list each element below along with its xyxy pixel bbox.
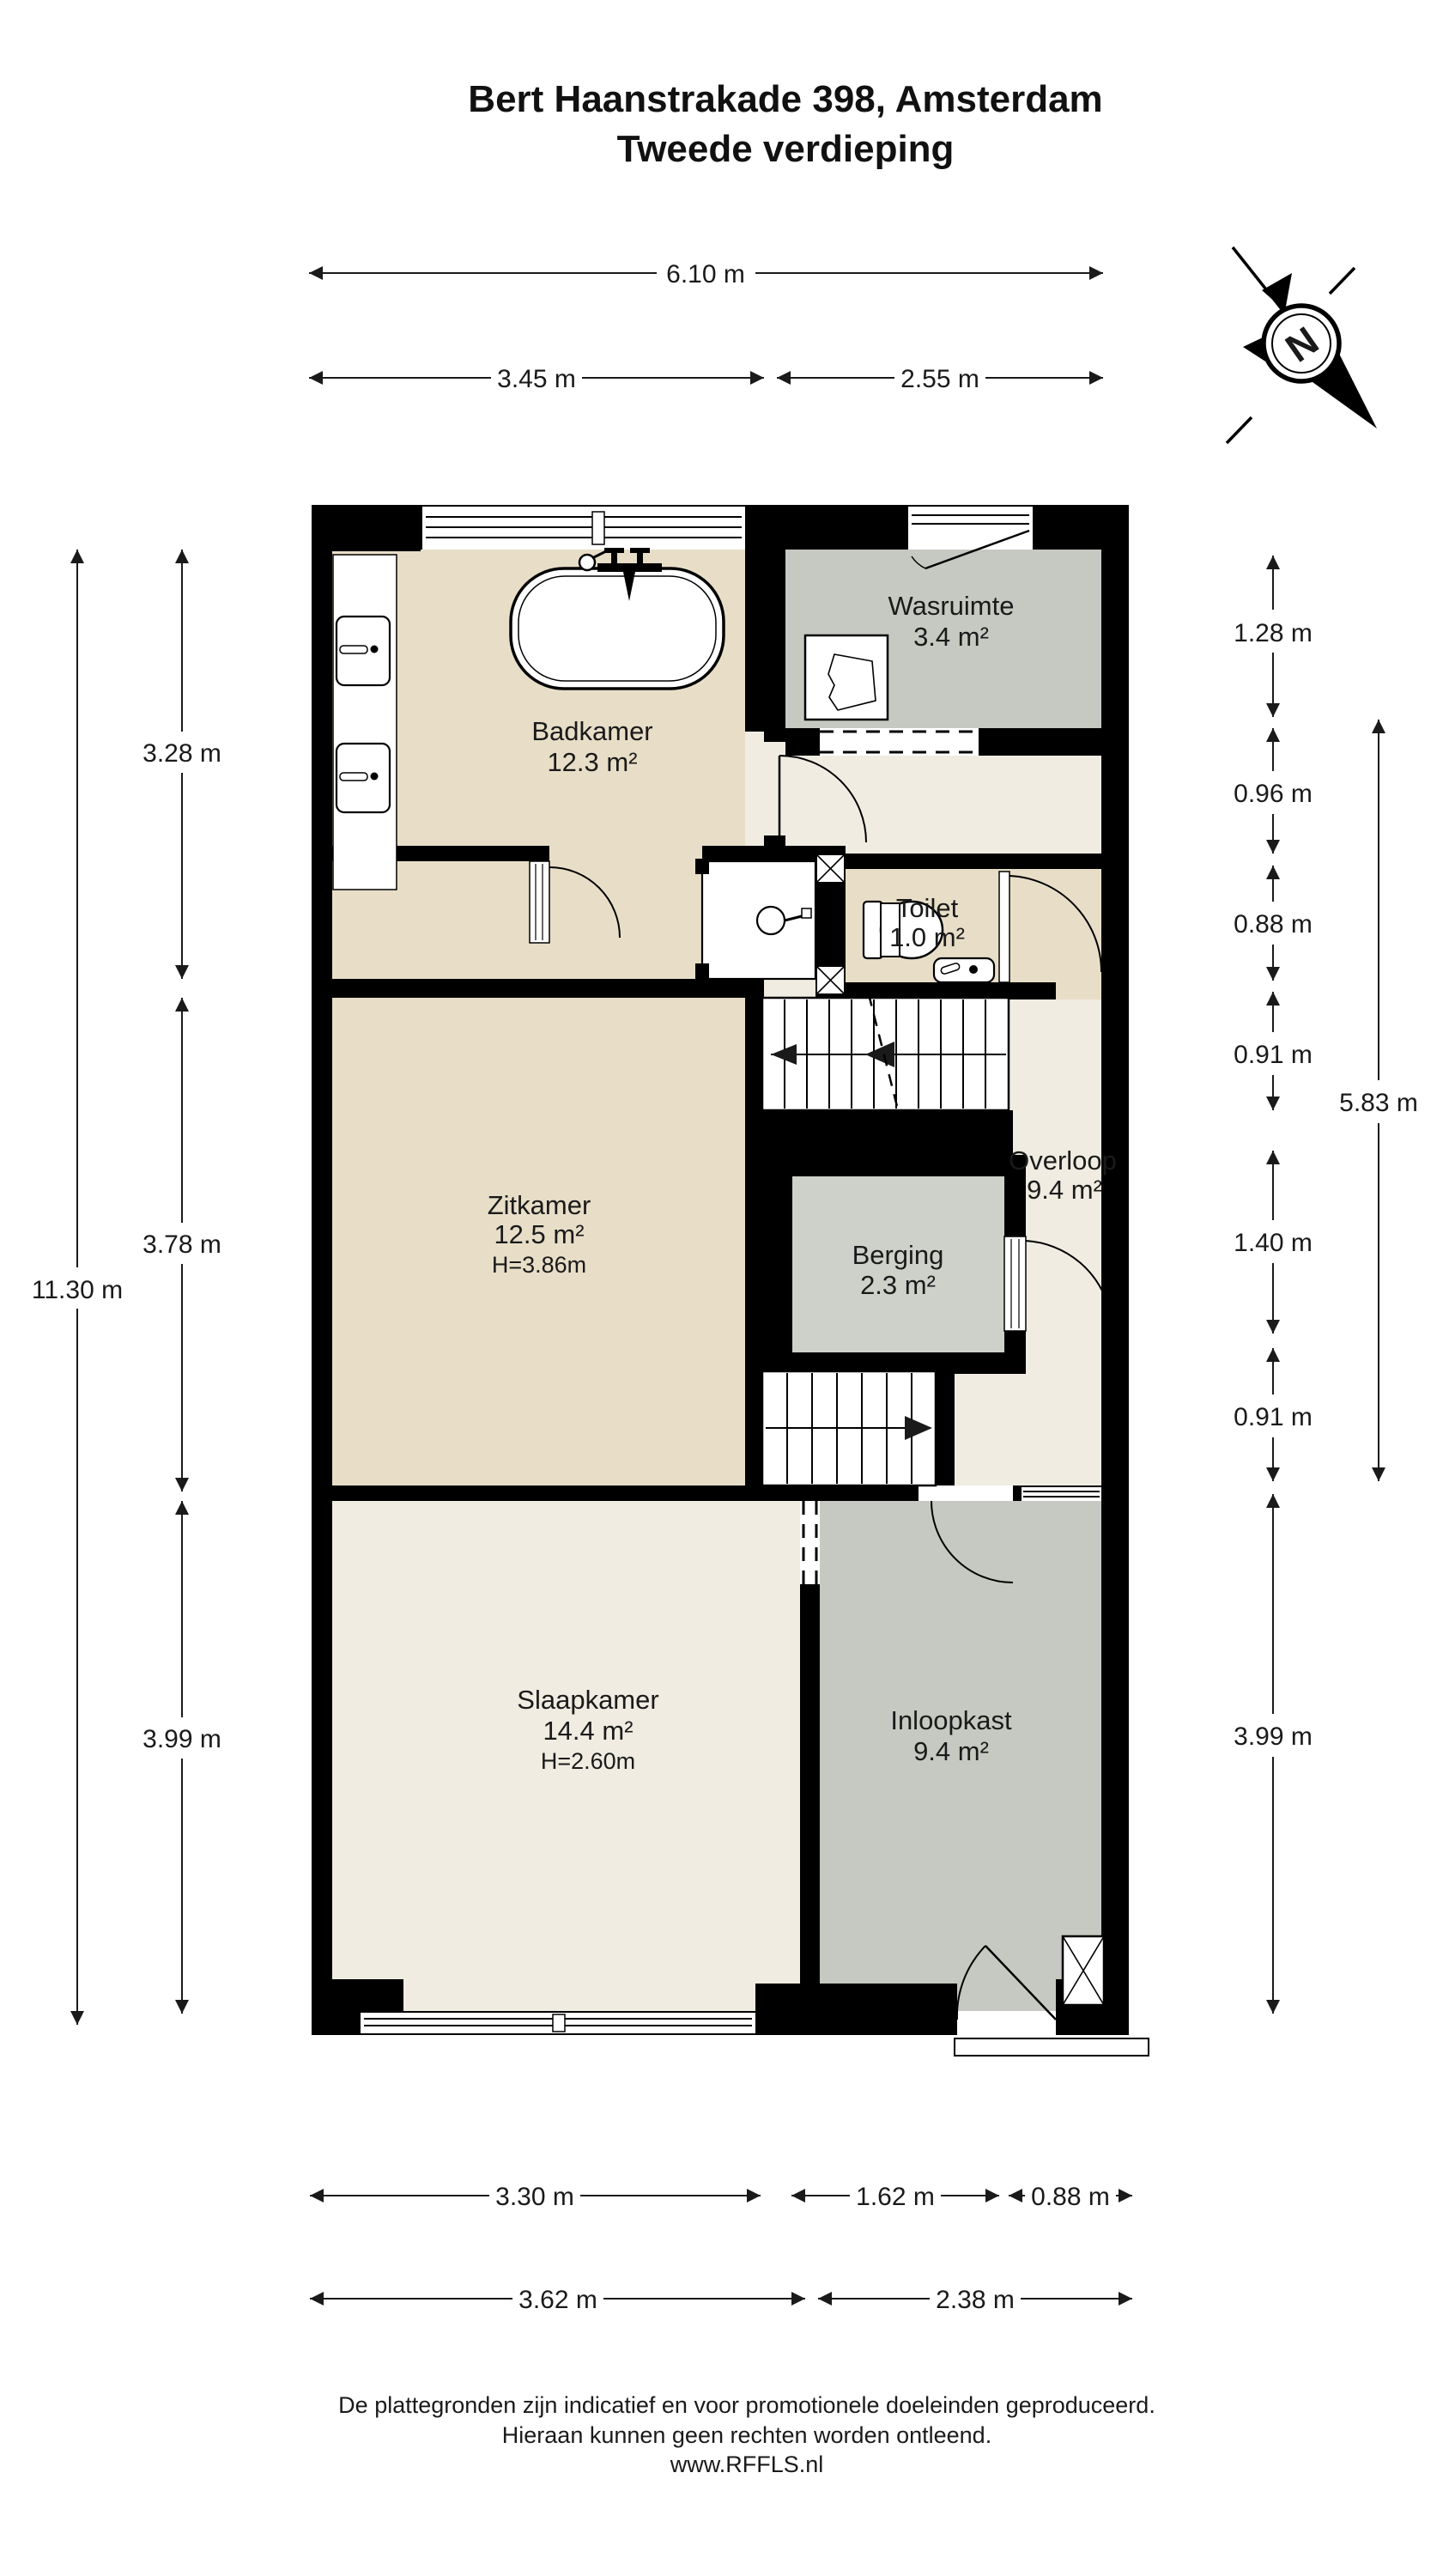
window-slaapkamer-bottom — [361, 2013, 755, 2033]
title-line-2: Tweede verdieping — [617, 128, 955, 170]
dim-bottom2-0: 3.62 m — [518, 2286, 597, 2314]
label-badkamer: Badkamer — [531, 716, 652, 746]
label-slaapkamer: Slaapkamer — [517, 1685, 658, 1715]
dims-right: 1.28 m 0.96 m 0.88 m 0.91 m 1.40 m 0.91 … — [1234, 556, 1418, 2014]
footer-line-1: De plattegronden zijn indicatief en voor… — [338, 2392, 1155, 2418]
hand-basin-icon — [934, 958, 994, 982]
stairs-upper — [762, 994, 1009, 1123]
dim-right-seg-6: 3.99 m — [1234, 1722, 1313, 1751]
dim-top-total: 6.10 m — [666, 260, 745, 289]
dim-top-right: 2.55 m — [900, 365, 979, 393]
stairs-lower — [762, 1371, 936, 1485]
label-berging: Berging — [852, 1240, 944, 1270]
dim-left-seg-2: 3.99 m — [142, 1725, 221, 1753]
opening-wasruimte-hall — [820, 728, 979, 756]
label-toilet: Toilet — [896, 893, 959, 923]
dim-right-seg-4: 1.40 m — [1234, 1229, 1313, 1257]
page-title: Bert Haanstrakade 398, Amsterdam Tweede … — [468, 78, 1102, 170]
label-overloop-area: 9.4 m² — [1027, 1175, 1102, 1205]
label-zitkamer-area: 12.5 m² — [494, 1219, 584, 1249]
dim-right-seg-3: 0.91 m — [1234, 1041, 1313, 1069]
dim-top-left: 3.45 m — [497, 365, 576, 393]
dim-right-seg-2: 0.88 m — [1234, 910, 1313, 939]
floorplan-svg: Bert Haanstrakade 398, Amsterdam Tweede … — [0, 0, 1449, 2576]
dim-right-seg-5: 0.91 m — [1234, 1403, 1313, 1431]
dim-bottom1-1: 1.62 m — [856, 2183, 935, 2211]
label-inloopkast-area: 9.4 m² — [913, 1736, 989, 1766]
footer: De plattegronden zijn indicatief en voor… — [338, 2392, 1155, 2477]
dim-bottom1-2: 0.88 m — [1031, 2183, 1110, 2211]
shower-icon — [695, 859, 815, 979]
window-badkamer-top — [422, 507, 745, 550]
label-wasruimte: Wasruimte — [888, 591, 1015, 621]
label-badkamer-area: 12.3 m² — [547, 747, 637, 777]
washing-machine-icon — [805, 635, 888, 720]
label-slaapkamer-area: 14.4 m² — [543, 1716, 633, 1746]
footer-line-2: Hieraan kunnen geen rechten worden ontle… — [502, 2422, 991, 2448]
dims-left: 11.30 m 3.28 m 3.78 m 3.99 m — [32, 550, 221, 2025]
dim-left-seg-1: 3.78 m — [142, 1230, 221, 1259]
dim-left-total: 11.30 m — [32, 1276, 123, 1304]
footer-line-3: www.RFFLS.nl — [670, 2451, 824, 2477]
sink-counter — [333, 555, 397, 890]
label-wasruimte-area: 3.4 m² — [913, 622, 989, 652]
opening-slaapkamer-inloopkast — [800, 1501, 820, 1584]
dim-right-seg-0: 1.28 m — [1234, 619, 1313, 647]
dim-right-seg-1: 0.96 m — [1234, 780, 1313, 808]
label-slaapkamer-height: H=2.60m — [541, 1748, 635, 1774]
label-zitkamer-height: H=3.86m — [492, 1252, 586, 1278]
compass-icon: N — [1227, 247, 1377, 443]
title-line-1: Bert Haanstrakade 398, Amsterdam — [468, 78, 1102, 120]
label-berging-area: 2.3 m² — [860, 1270, 936, 1300]
floorplan-sheet: Bert Haanstrakade 398, Amsterdam Tweede … — [0, 0, 1449, 2576]
dim-left-seg-0: 3.28 m — [142, 739, 221, 768]
dims-bottom: 3.30 m 1.62 m 0.88 m 3.62 m 2.38 m — [310, 2183, 1132, 2314]
label-zitkamer: Zitkamer — [488, 1190, 591, 1220]
dim-bottom2-1: 2.38 m — [936, 2286, 1015, 2314]
dim-right-total: 5.83 m — [1339, 1089, 1418, 1117]
label-inloopkast: Inloopkast — [890, 1705, 1012, 1735]
dim-bottom1-0: 3.30 m — [495, 2183, 574, 2211]
label-toilet-area: 1.0 m² — [889, 922, 965, 952]
label-overloop: Overloop — [1009, 1145, 1117, 1176]
dims-top: 6.10 m 3.45 m 2.55 m — [309, 260, 1103, 393]
